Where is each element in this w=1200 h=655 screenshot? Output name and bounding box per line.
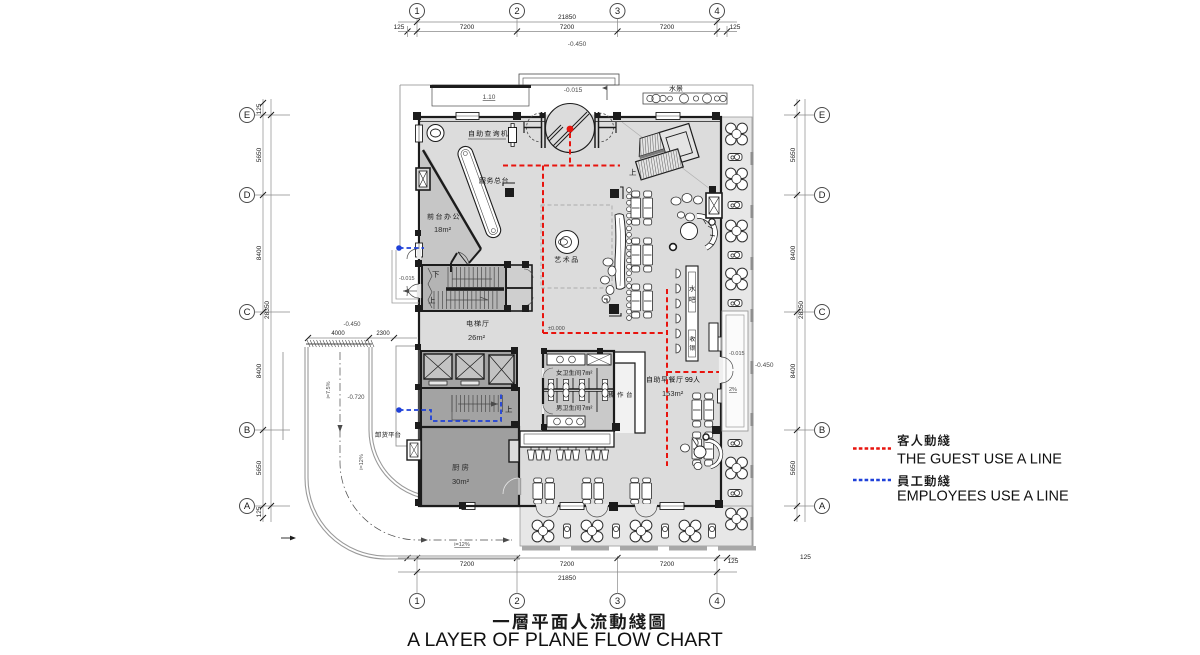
svg-text:i=7.5%: i=7.5% xyxy=(326,381,332,398)
svg-text:2%: 2% xyxy=(729,387,737,393)
svg-text:7200: 7200 xyxy=(460,24,475,31)
svg-text:-0.015: -0.015 xyxy=(729,351,745,357)
svg-text:8400: 8400 xyxy=(790,245,797,260)
svg-text:1: 1 xyxy=(414,596,419,607)
svg-text:1: 1 xyxy=(414,6,419,17)
svg-text:125: 125 xyxy=(256,506,263,517)
svg-text:125: 125 xyxy=(394,24,405,31)
svg-text:A: A xyxy=(244,501,251,512)
svg-text:4: 4 xyxy=(714,6,719,17)
svg-text:125: 125 xyxy=(728,558,739,565)
svg-text:5650: 5650 xyxy=(790,147,797,162)
svg-text:7200: 7200 xyxy=(560,24,575,31)
svg-text:125: 125 xyxy=(730,24,741,31)
svg-text:THE GUEST USE A LINE: THE GUEST USE A LINE xyxy=(897,452,1062,468)
svg-text:i=12%: i=12% xyxy=(359,454,365,470)
svg-text:153m²: 153m² xyxy=(662,389,684,398)
svg-text:4: 4 xyxy=(714,596,719,607)
svg-text:2300: 2300 xyxy=(376,331,390,337)
svg-text:7200: 7200 xyxy=(560,561,575,568)
svg-text:3: 3 xyxy=(615,6,620,17)
svg-text:B: B xyxy=(819,425,825,436)
svg-text:18m²: 18m² xyxy=(434,225,452,234)
svg-text:125: 125 xyxy=(256,103,263,114)
svg-text:21850: 21850 xyxy=(558,575,576,582)
svg-text:E: E xyxy=(819,110,825,121)
svg-text:5650: 5650 xyxy=(790,460,797,475)
svg-text:EMPLOYEES USE A LINE: EMPLOYEES USE A LINE xyxy=(897,489,1069,505)
svg-text:7m²: 7m² xyxy=(582,371,592,377)
svg-text:D: D xyxy=(244,190,251,201)
svg-text:A: A xyxy=(819,501,826,512)
svg-text:±0.000: ±0.000 xyxy=(548,326,565,332)
svg-text:-0.720: -0.720 xyxy=(347,395,365,401)
svg-text:28350: 28350 xyxy=(264,301,271,319)
svg-text:C: C xyxy=(819,307,826,318)
svg-text:2: 2 xyxy=(514,6,519,17)
svg-text:5650: 5650 xyxy=(256,460,263,475)
svg-text:8400: 8400 xyxy=(790,363,797,378)
svg-text:-0.450: -0.450 xyxy=(343,322,361,328)
svg-text:-0.450: -0.450 xyxy=(755,362,774,369)
svg-text:5650: 5650 xyxy=(256,147,263,162)
svg-text:C: C xyxy=(244,307,251,318)
svg-text:8400: 8400 xyxy=(256,245,263,260)
svg-text:E: E xyxy=(244,110,250,121)
svg-text:8400: 8400 xyxy=(256,363,263,378)
svg-text:7m²: 7m² xyxy=(582,406,592,412)
svg-text:7200: 7200 xyxy=(460,561,475,568)
svg-text:26m²: 26m² xyxy=(468,333,486,342)
svg-text:4000: 4000 xyxy=(331,331,345,337)
svg-text:-0.015: -0.015 xyxy=(564,87,583,94)
svg-text:99: 99 xyxy=(685,377,693,384)
svg-text:2: 2 xyxy=(514,596,519,607)
svg-text:-0.450: -0.450 xyxy=(568,41,587,48)
svg-text:D: D xyxy=(819,190,826,201)
svg-text:A LAYER OF PLANE FLOW CHART: A LAYER OF PLANE FLOW CHART xyxy=(407,629,723,650)
svg-text:7200: 7200 xyxy=(660,561,675,568)
svg-text:1.10: 1.10 xyxy=(483,94,496,101)
svg-text:-0.015: -0.015 xyxy=(399,276,415,282)
svg-text:7200: 7200 xyxy=(660,24,675,31)
svg-text:28350: 28350 xyxy=(798,301,805,319)
svg-text:i=12%: i=12% xyxy=(454,542,470,548)
svg-text:3: 3 xyxy=(615,596,620,607)
svg-text:B: B xyxy=(244,425,250,436)
svg-text:125: 125 xyxy=(800,554,811,561)
svg-text:21850: 21850 xyxy=(558,14,576,21)
svg-text:30m²: 30m² xyxy=(452,477,470,486)
